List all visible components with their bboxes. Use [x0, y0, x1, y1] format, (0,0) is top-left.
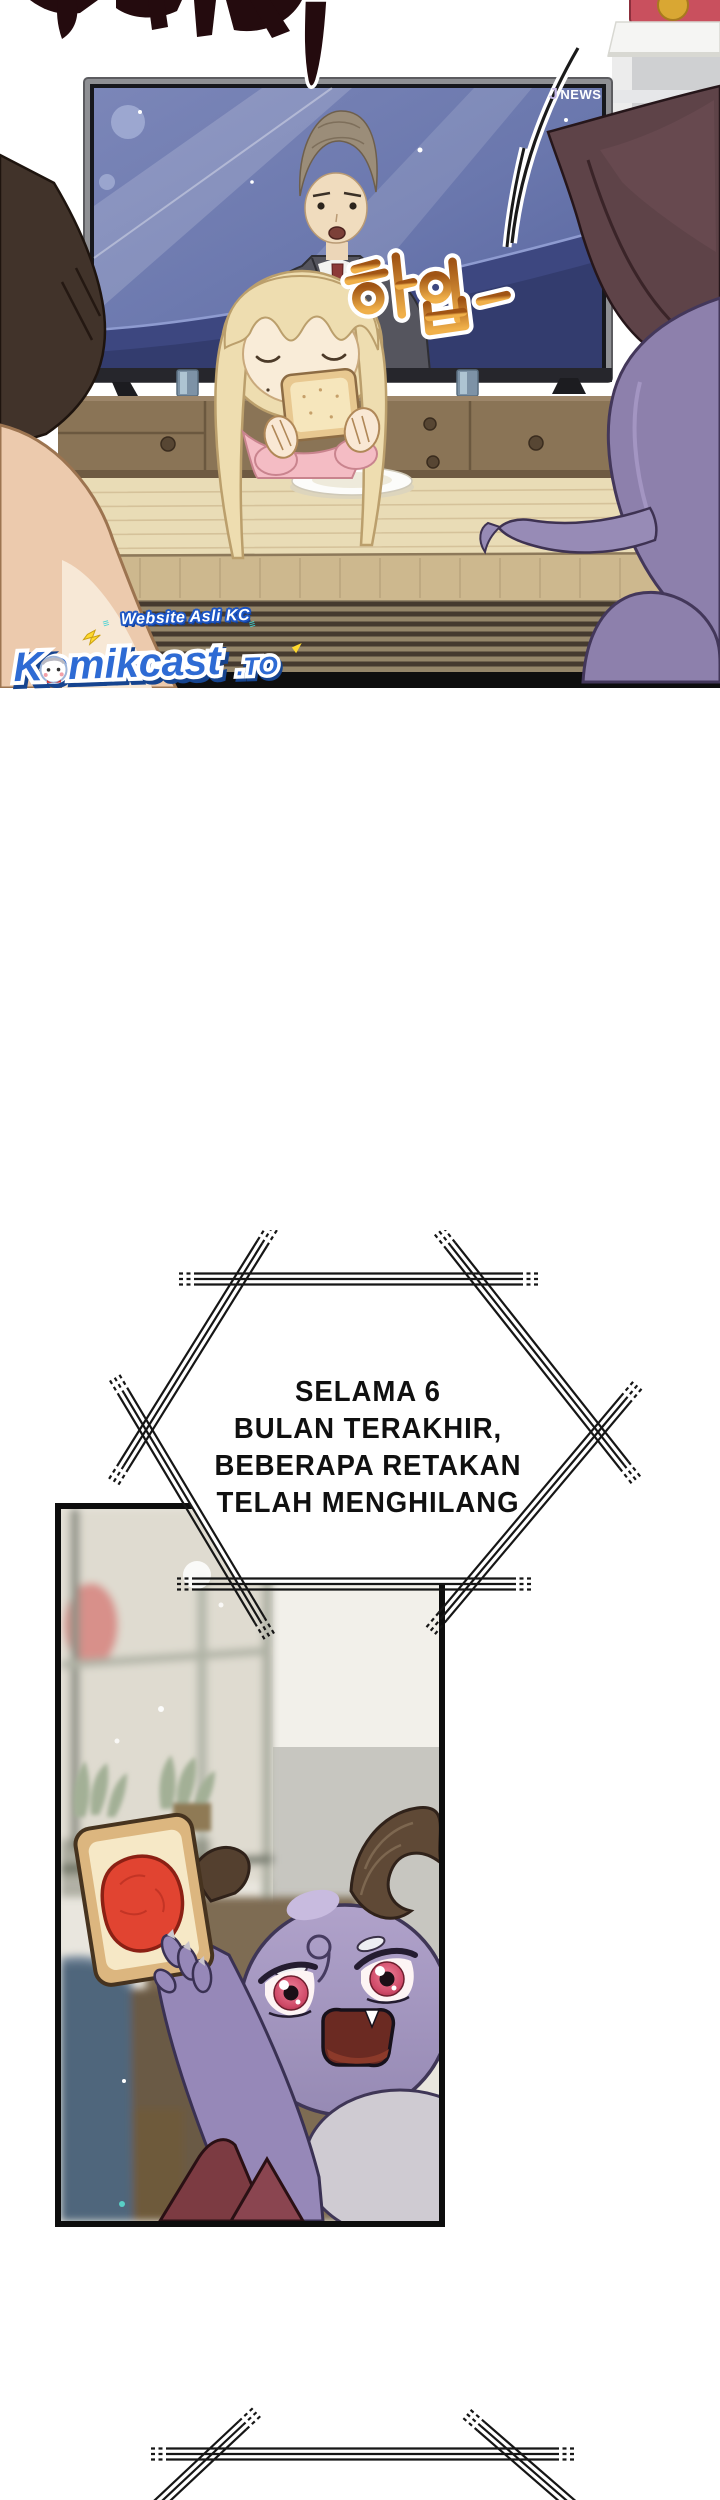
panel-1-artwork: [0, 0, 720, 688]
komikcast-watermark: ≡ Website Asli KC ≡ Komikcast Komikcast …: [3, 603, 316, 704]
watermark-brand-lockup: Komikcast Komikcast .TO .TO: [3, 621, 315, 696]
comic-page: JNEWS 하압— ≡ Website Asli KC ≡ Komikcast …: [0, 0, 720, 2500]
panel-1-tv-scene: JNEWS 하압—: [0, 0, 720, 688]
watermark-tld: .TO: [236, 652, 279, 681]
news-channel-j-icon: J: [549, 86, 558, 103]
title-calligraphy: [30, 0, 328, 87]
panel-2-artwork: [61, 1509, 439, 2221]
mascot-chibi-icon: [40, 656, 67, 683]
sfx-yawn-text: 하압—: [0, 688, 1, 689]
speech-bubble-text: SELAMA 6 BULAN TERAKHIR, BEBERAPA RETAKA…: [189, 1374, 546, 1522]
spark-icon: [292, 643, 302, 653]
panel-2-demon-child: [55, 1503, 445, 2227]
speech-bubble-hexagon-partial: [0, 2400, 720, 2500]
tv-news-logo: JNEWS: [549, 86, 601, 104]
demon-child-mouth: [323, 2010, 393, 2066]
